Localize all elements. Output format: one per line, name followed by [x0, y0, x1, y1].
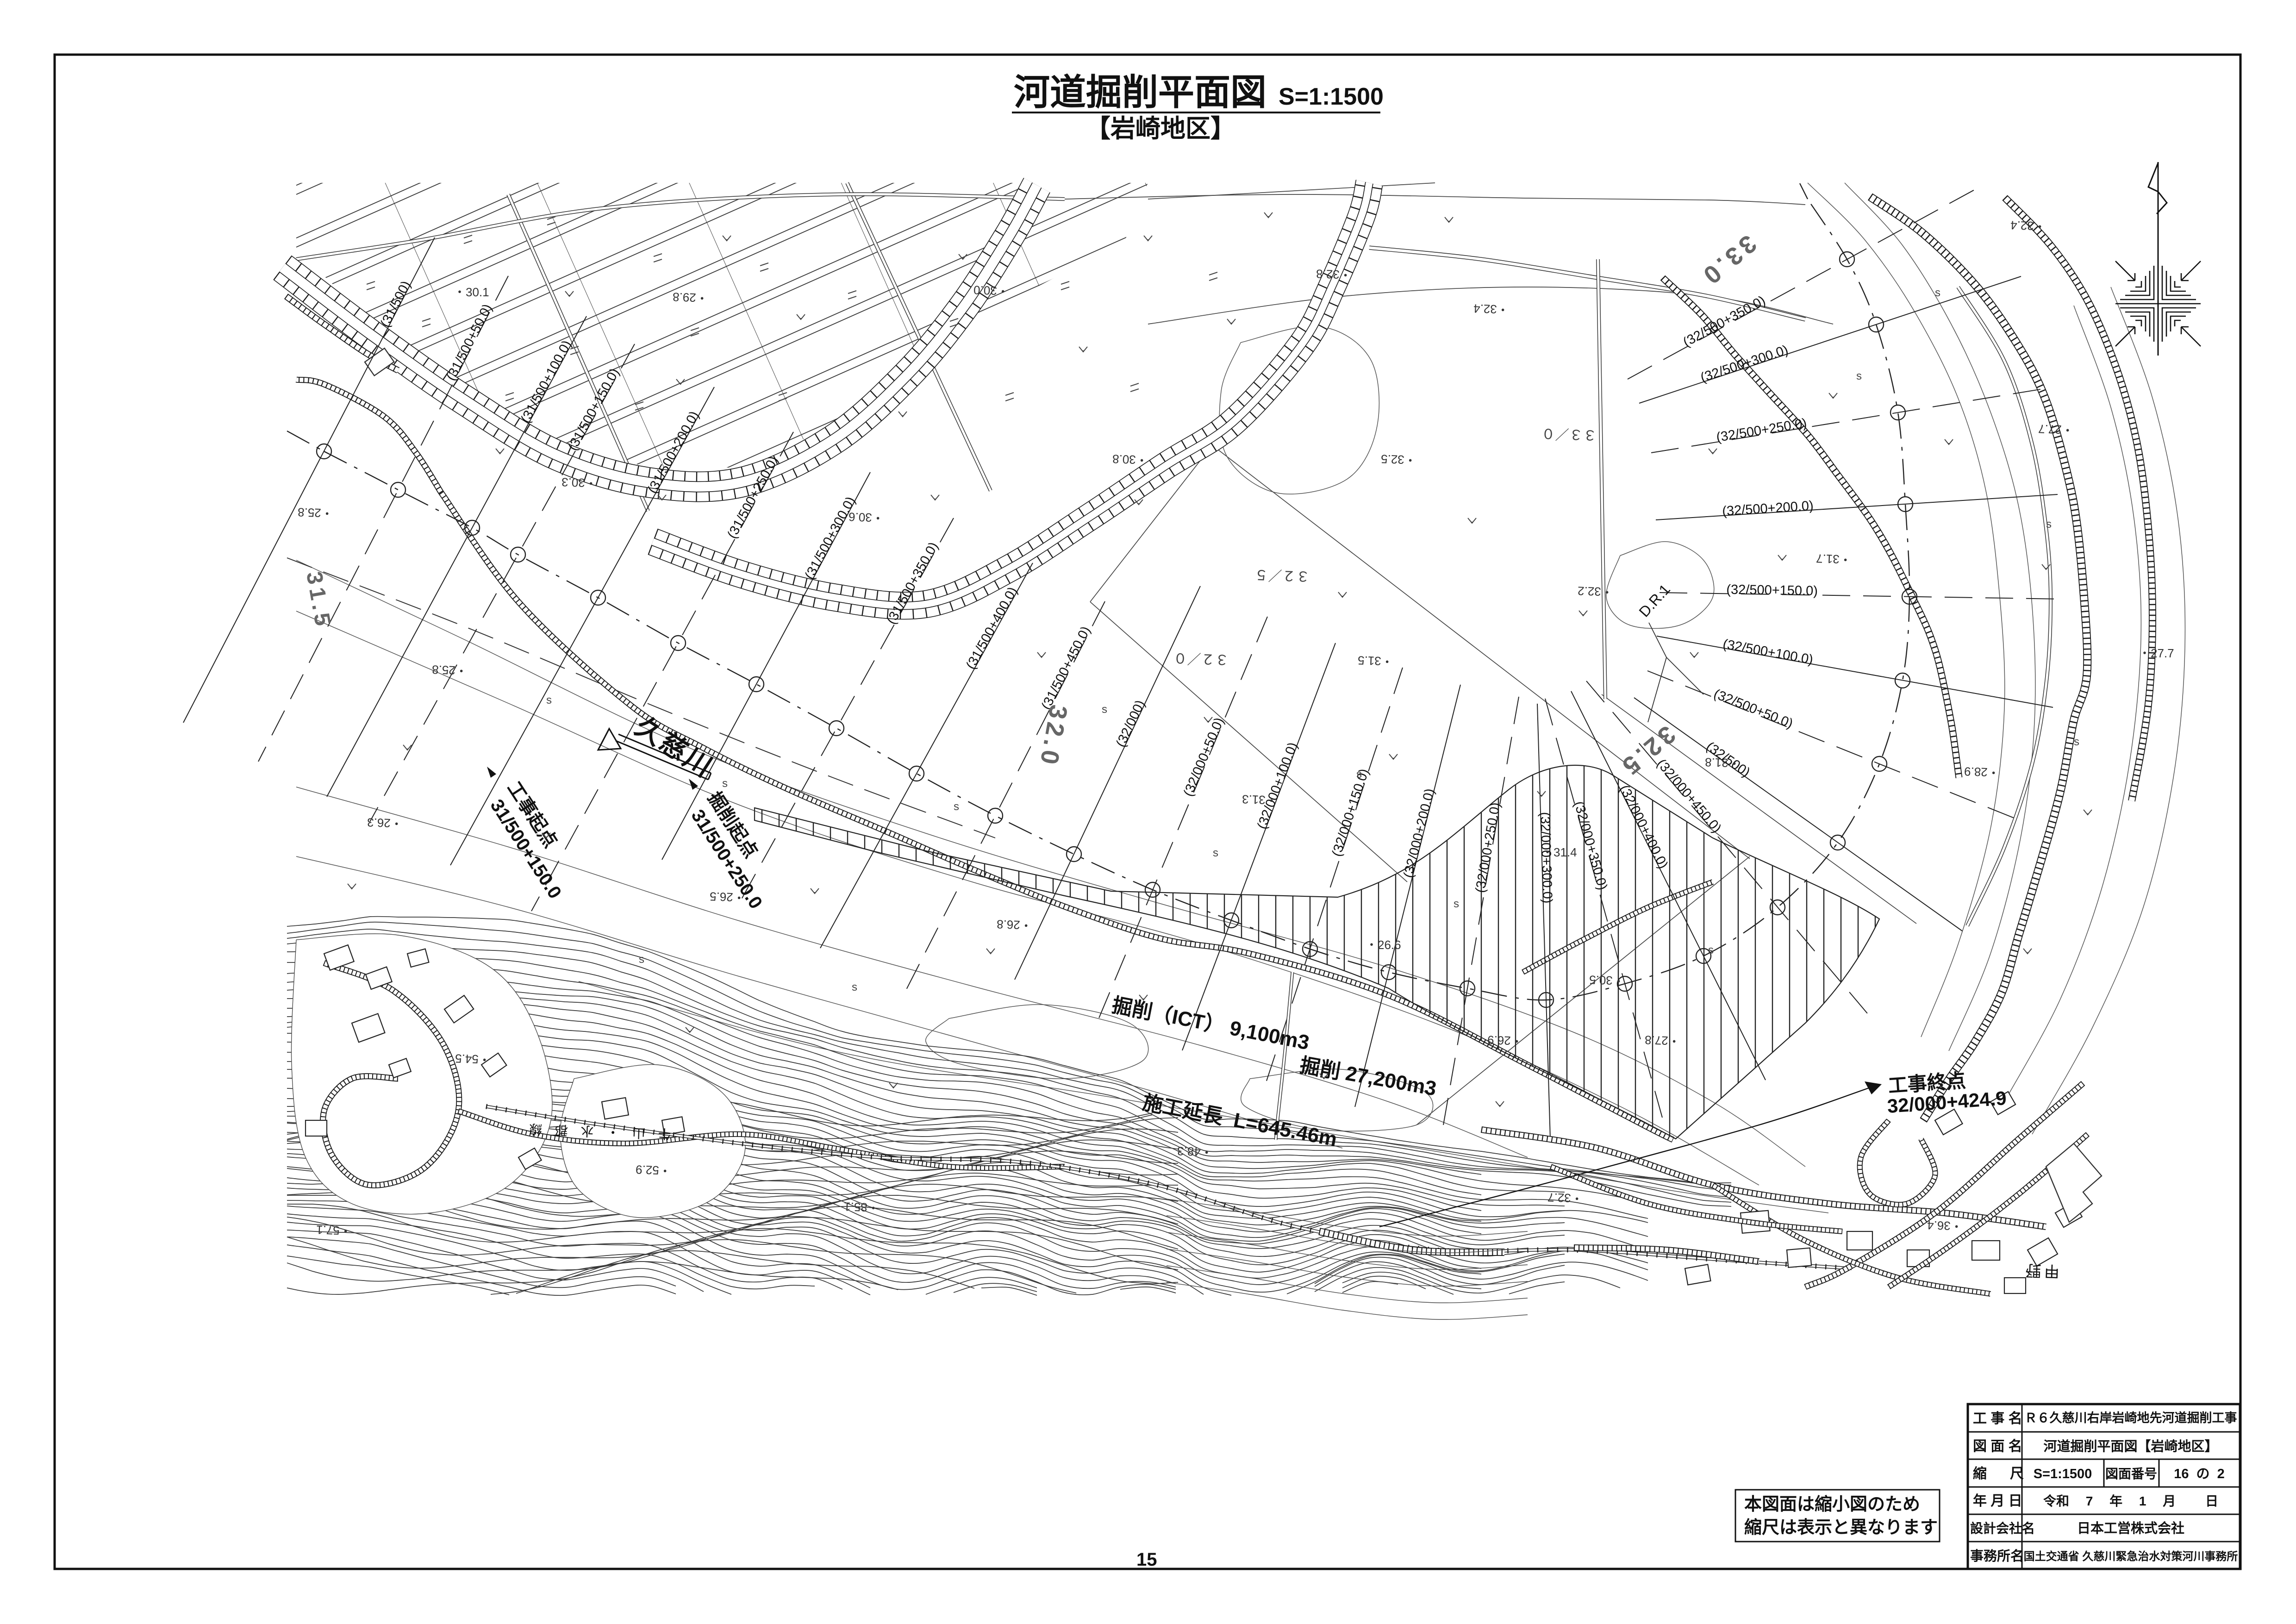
- svg-text:s: s: [1102, 703, 1107, 716]
- svg-text:s: s: [1935, 287, 1940, 299]
- svg-text:s: s: [546, 694, 552, 706]
- svg-text:３２／５: ３２／５: [1254, 567, 1310, 584]
- svg-text:・27.7: ・27.7: [2038, 422, 2074, 437]
- svg-text:３３／０: ３３／０: [1541, 425, 1597, 443]
- svg-text:縮 尺: 縮 尺: [1973, 1466, 2024, 1481]
- svg-text:・28.9: ・28.9: [1964, 764, 2000, 780]
- svg-text:工 事 名: 工 事 名: [1973, 1411, 2022, 1426]
- svg-text:・31.8: ・31.8: [1705, 755, 1741, 770]
- svg-text:・32.7: ・32.7: [1547, 1190, 1584, 1206]
- svg-text:・32.4: ・32.4: [2010, 218, 2046, 233]
- svg-text:S=1:1500: S=1:1500: [1279, 83, 1384, 110]
- svg-text:16 の 2: 16 の 2: [2174, 1467, 2225, 1481]
- svg-text:【岩崎地区】: 【岩崎地区】: [1086, 115, 1235, 143]
- svg-text:・32.2: ・32.2: [1578, 584, 1614, 599]
- svg-text:S=1:1500: S=1:1500: [2034, 1467, 2092, 1481]
- svg-text:図 面 名: 図 面 名: [1973, 1439, 2022, 1454]
- svg-text:・32.4: ・32.4: [1473, 301, 1510, 317]
- svg-text:・27.8: ・27.8: [1645, 1033, 1681, 1048]
- svg-text:・30.5: ・30.5: [1589, 973, 1625, 988]
- svg-text:・85.1: ・85.1: [844, 1199, 880, 1215]
- svg-text:・30.0: ・30.0: [973, 283, 1010, 298]
- svg-text:甲野: 甲野: [2022, 1261, 2060, 1280]
- svg-text:３２／０: ３２／０: [1173, 650, 1229, 667]
- svg-text:・26.8: ・26.8: [997, 917, 1033, 932]
- svg-text:s: s: [1708, 944, 1714, 956]
- svg-text:s: s: [1454, 898, 1459, 910]
- svg-text:本図面は縮小図のため: 本図面は縮小図のため: [1744, 1495, 1920, 1514]
- svg-text:15: 15: [1136, 1549, 1157, 1570]
- svg-text:・26.9: ・26.9: [1487, 1033, 1523, 1048]
- svg-text:s: s: [639, 953, 644, 966]
- svg-text:・26.6: ・26.6: [1366, 938, 1401, 952]
- svg-text:・48.3: ・48.3: [1177, 1144, 1213, 1159]
- svg-text:・54.5: ・54.5: [455, 1051, 491, 1067]
- svg-text:縮尺は表示と異なります: 縮尺は表示と異なります: [1744, 1518, 1938, 1537]
- svg-text:・52.9: ・52.9: [636, 1162, 672, 1178]
- svg-text:・36.4: ・36.4: [1927, 1218, 1963, 1233]
- svg-text:国土交通省 久慈川緊急治水対策河川事務所: 国土交通省 久慈川緊急治水対策河川事務所: [2024, 1550, 2238, 1563]
- svg-text:s: s: [2046, 518, 2052, 531]
- svg-text:s: s: [1213, 847, 1218, 859]
- svg-text:・57.1: ・57.1: [316, 1223, 352, 1238]
- svg-text:・30.6: ・30.6: [849, 510, 885, 525]
- svg-text:・31.7: ・31.7: [1816, 551, 1852, 567]
- svg-text:・30.3: ・30.3: [562, 475, 598, 490]
- svg-text:河道掘削平面図【岩崎地区】: 河道掘削平面図【岩崎地区】: [2043, 1439, 2218, 1454]
- svg-text:・26.3: ・26.3: [367, 815, 403, 831]
- svg-text:・29.8: ・29.8: [673, 290, 709, 305]
- svg-text:日本工営株式会社: 日本工営株式会社: [2077, 1520, 2184, 1536]
- svg-text:s: s: [954, 800, 959, 813]
- svg-text:令和 7 年 1 月 日: 令和 7 年 1 月 日: [2043, 1493, 2218, 1508]
- svg-text:・27.7: ・27.7: [2139, 646, 2174, 660]
- svg-text:s: s: [722, 777, 728, 790]
- svg-text:年 月 日: 年 月 日: [1973, 1493, 2022, 1509]
- svg-text:・31.5: ・31.5: [1358, 653, 1394, 668]
- svg-text:図面番号: 図面番号: [2105, 1467, 2157, 1481]
- svg-text:・31.3: ・31.3: [1242, 792, 1278, 807]
- svg-text:・25.8: ・25.8: [432, 662, 468, 678]
- svg-text:設計会社名: 設計会社名: [1970, 1521, 2035, 1536]
- svg-text:s: s: [852, 981, 857, 993]
- svg-text:s: s: [1356, 768, 1362, 781]
- svg-text:s: s: [2074, 736, 2079, 748]
- svg-text:・32.8: ・32.8: [1316, 267, 1352, 282]
- svg-text:・30.8: ・30.8: [1112, 452, 1148, 467]
- svg-text:河道掘削平面図: 河道掘削平面図: [1014, 72, 1267, 112]
- svg-text:事務所名: 事務所名: [1970, 1549, 2024, 1564]
- svg-text:・26.5: ・26.5: [710, 889, 746, 905]
- svg-text:・31.4: ・31.4: [1541, 845, 1577, 859]
- svg-text:s: s: [1856, 370, 1862, 382]
- svg-text:・30.1: ・30.1: [454, 285, 489, 299]
- svg-text:・25.8: ・25.8: [298, 505, 334, 520]
- svg-text:Ｒ６久慈川右岸岩崎地先河道掘削工事: Ｒ６久慈川右岸岩崎地先河道掘削工事: [2025, 1411, 2237, 1425]
- svg-text:(32/500+150.0): (32/500+150.0): [1726, 582, 1818, 599]
- svg-text:・32.5: ・32.5: [1381, 452, 1417, 467]
